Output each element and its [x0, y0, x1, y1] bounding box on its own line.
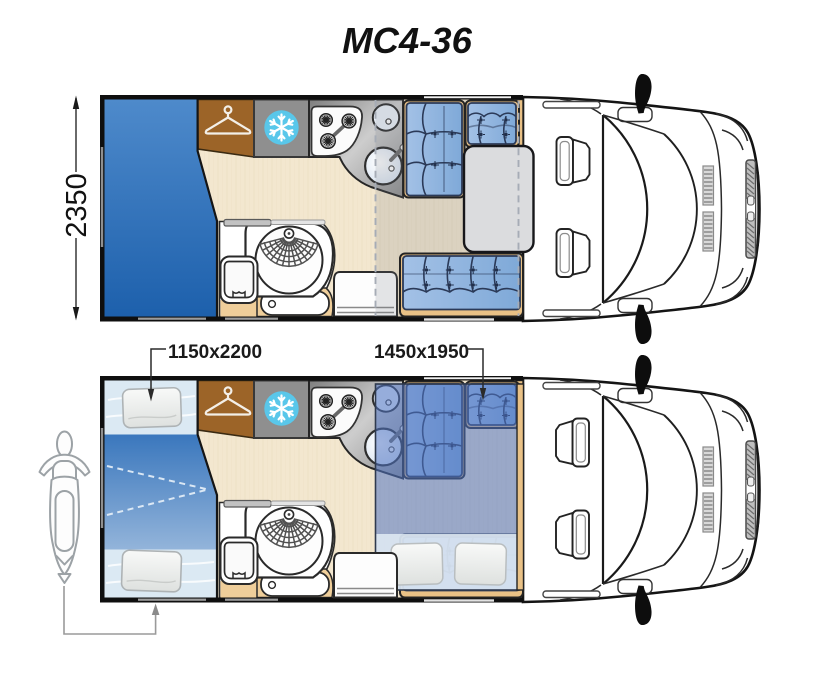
svg-text:2350: 2350	[61, 173, 93, 238]
svg-text:1150x2200: 1150x2200	[168, 342, 262, 363]
svg-text:MC4-36: MC4-36	[342, 20, 473, 61]
svg-text:1450x1950: 1450x1950	[374, 342, 469, 363]
